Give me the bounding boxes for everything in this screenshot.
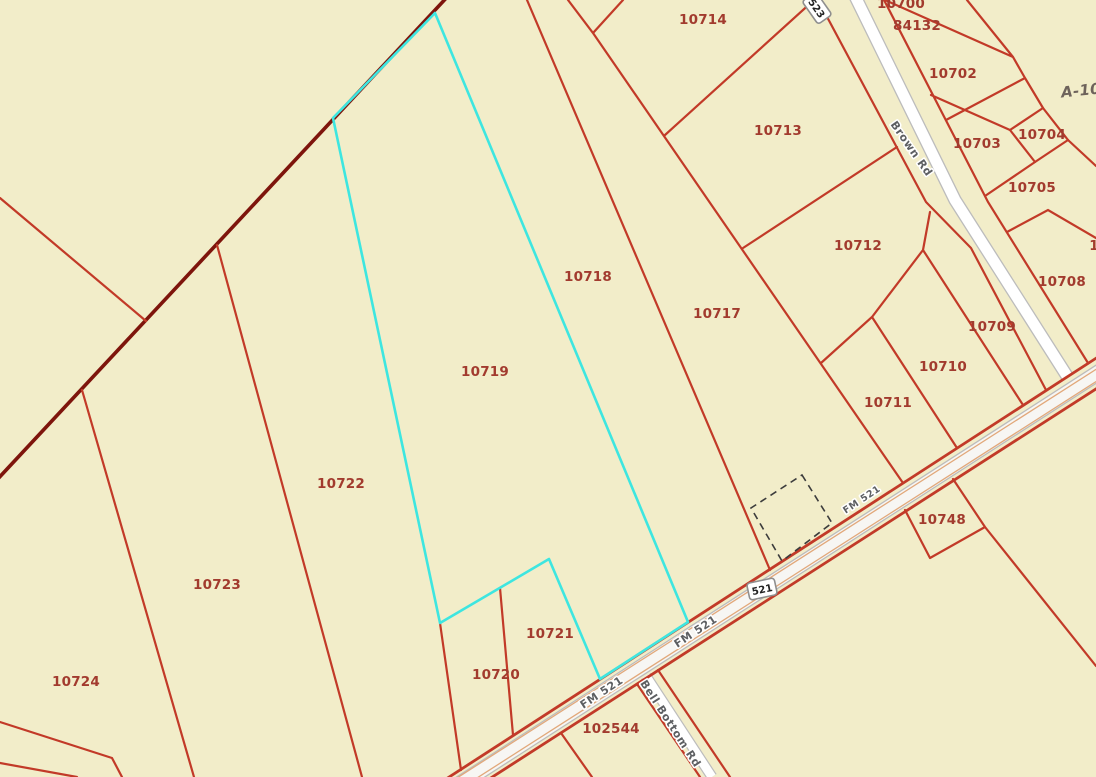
parcel-label-10714[interactable]: 10714 [679,12,727,28]
parcel-label-10718[interactable]: 10718 [564,269,612,285]
parcel-label-10703[interactable]: 10703 [953,136,1001,152]
parcel-label-10712[interactable]: 10712 [834,238,882,254]
parcel-label-10717[interactable]: 10717 [693,306,741,322]
map-background [0,0,1096,777]
parcel-label-1[interactable]: 1 [1089,238,1096,254]
parcel-label-102544[interactable]: 102544 [582,721,640,737]
parcel-label-10702[interactable]: 10702 [929,66,977,82]
parcel-label-10704[interactable]: 10704 [1018,127,1066,143]
parcel-label-10711[interactable]: 10711 [864,395,912,411]
parcel-label-10708[interactable]: 10708 [1038,274,1086,290]
parcel-label-10719[interactable]: 10719 [461,364,509,380]
parcel-label-10720[interactable]: 10720 [472,667,520,683]
parcel-label-10721[interactable]: 10721 [526,626,574,642]
parcel-map[interactable]: 1070084132107021070310704107051070810709… [0,0,1096,777]
parcel-map-canvas[interactable]: 1070084132107021070310704107051070810709… [0,0,1096,777]
parcel-label-10722[interactable]: 10722 [317,476,365,492]
parcel-label-10723[interactable]: 10723 [193,577,241,593]
parcel-label-84132[interactable]: 84132 [893,18,941,34]
parcel-label-10724[interactable]: 10724 [52,674,100,690]
survey-abstract-label: A-10 [1059,79,1096,101]
parcel-label-10709[interactable]: 10709 [968,319,1016,335]
parcel-label-10700[interactable]: 10700 [877,0,925,12]
parcel-label-10705[interactable]: 10705 [1008,180,1056,196]
parcel-label-10713[interactable]: 10713 [754,123,802,139]
parcel-label-10748[interactable]: 10748 [918,512,966,528]
parcel-label-10710[interactable]: 10710 [919,359,967,375]
survey-label-layer: A-10 [1059,79,1096,101]
